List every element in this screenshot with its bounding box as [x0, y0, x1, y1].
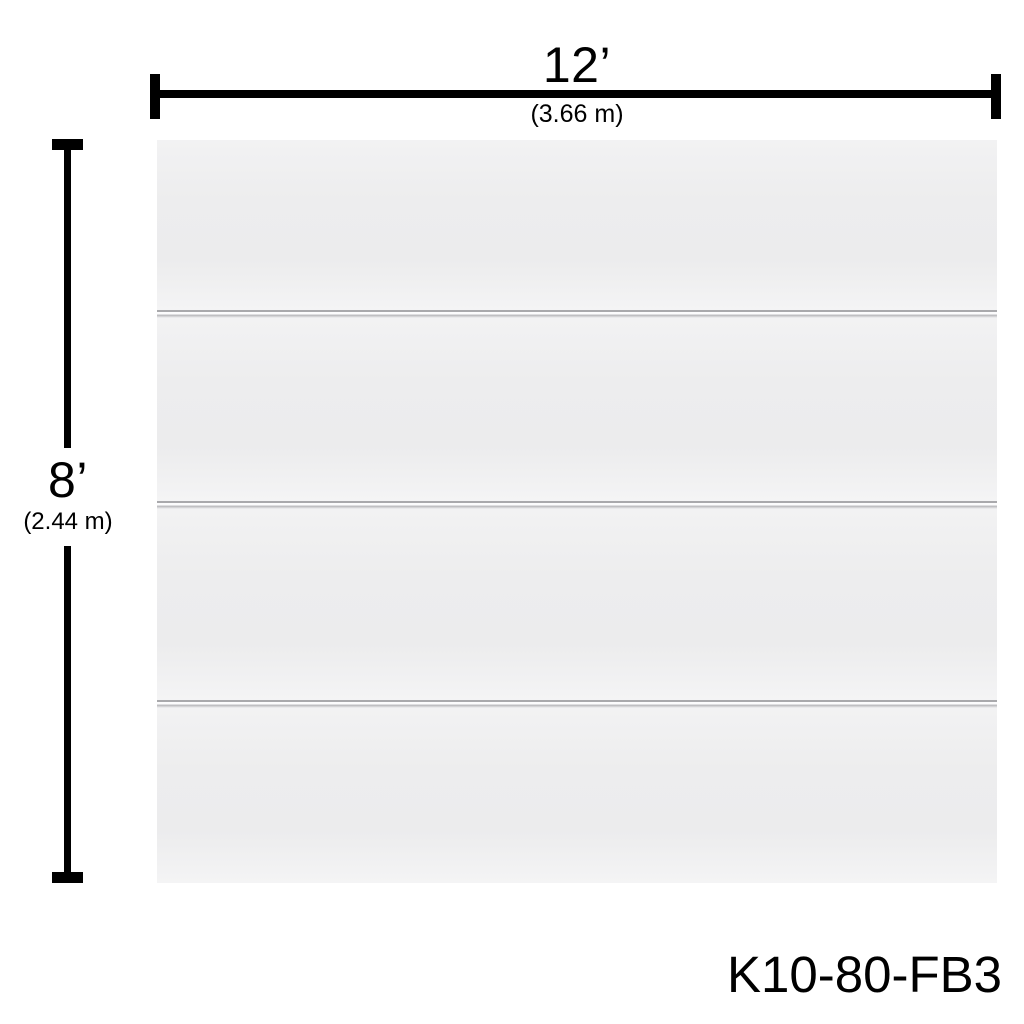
panel-groove	[157, 310, 997, 318]
width-dimension-label: 12’	[157, 40, 997, 90]
width-dimension-metric-label: (3.66 m)	[157, 101, 997, 128]
door-panel	[157, 140, 997, 883]
height-dimension-label: 8’	[0, 456, 136, 504]
panel-section	[157, 318, 997, 501]
height-dimension-label-group: 8’ (2.44 m)	[0, 448, 136, 546]
width-dimension-line	[160, 90, 992, 98]
panel-groove	[157, 501, 997, 509]
panel-groove	[157, 700, 997, 708]
product-code: K10-80-FB3	[727, 948, 1002, 1002]
height-dimension-bottom-tick	[52, 872, 83, 883]
panel-section	[157, 509, 997, 700]
panel-section	[157, 140, 997, 310]
panel-section	[157, 708, 997, 883]
height-dimension-metric-label: (2.44 m)	[0, 508, 136, 536]
panel-dimension-diagram: 12’ (3.66 m) 8’ (2.44 m) K10-80-FB3	[0, 0, 1024, 1024]
